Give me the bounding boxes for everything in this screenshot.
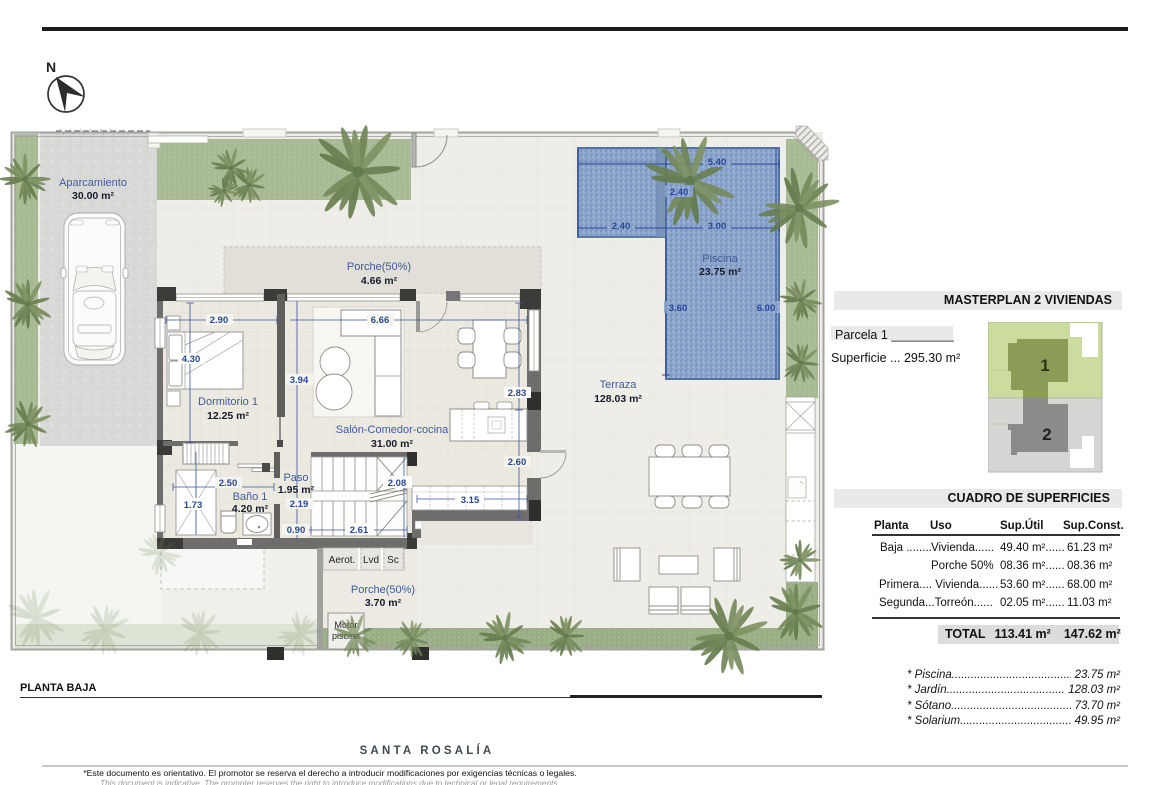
svg-text:Dormitorio 1: Dormitorio 1	[198, 396, 258, 408]
svg-text:1.73: 1.73	[184, 500, 203, 511]
svg-text:3.00: 3.00	[708, 221, 727, 232]
svg-text:Terraza: Terraza	[600, 379, 638, 391]
svg-text:Sc: Sc	[387, 555, 399, 566]
svg-text:2.60: 2.60	[508, 457, 527, 468]
svg-text:5.40: 5.40	[708, 157, 727, 168]
svg-text:2.40: 2.40	[612, 221, 631, 232]
svg-text:Aparcamiento: Aparcamiento	[59, 177, 127, 189]
svg-text:2.19: 2.19	[290, 499, 309, 510]
svg-text:2.50: 2.50	[219, 478, 238, 489]
svg-text:2.61: 2.61	[350, 525, 369, 536]
svg-text:2.90: 2.90	[210, 315, 229, 326]
svg-text:Baño 1: Baño 1	[233, 491, 268, 503]
svg-text:1: 1	[1040, 356, 1049, 375]
svg-text:3.60: 3.60	[669, 303, 688, 314]
svg-text:4.30: 4.30	[182, 354, 201, 365]
svg-text:Salón-Comedor-cocina: Salón-Comedor-cocina	[336, 424, 449, 436]
svg-text:2: 2	[1042, 425, 1051, 444]
svg-text:Lvd: Lvd	[363, 555, 379, 566]
svg-text:6.00: 6.00	[757, 303, 776, 314]
svg-text:Piscina: Piscina	[702, 253, 738, 265]
svg-text:0.90: 0.90	[287, 525, 306, 536]
svg-text:31.00 m²: 31.00 m²	[371, 438, 414, 450]
svg-text:2.08: 2.08	[388, 478, 407, 489]
svg-text:4.20 m²: 4.20 m²	[232, 503, 269, 515]
svg-text:2.83: 2.83	[508, 388, 527, 399]
svg-text:Porche(50%): Porche(50%)	[351, 584, 415, 596]
svg-text:128.03 m²: 128.03 m²	[594, 393, 642, 405]
svg-text:4.66 m²: 4.66 m²	[361, 275, 398, 287]
svg-text:Aerot.: Aerot.	[329, 555, 356, 566]
svg-text:3.15: 3.15	[461, 495, 480, 506]
svg-text:Paso: Paso	[283, 472, 308, 484]
svg-text:30.00 m²: 30.00 m²	[72, 190, 115, 202]
svg-text:23.75 m²: 23.75 m²	[699, 266, 742, 278]
svg-text:6.66: 6.66	[371, 315, 390, 326]
svg-text:1.95 m²: 1.95 m²	[278, 484, 315, 496]
svg-text:Porche(50%): Porche(50%)	[347, 261, 411, 273]
svg-text:2.40: 2.40	[670, 187, 689, 198]
svg-text:12.25 m²: 12.25 m²	[207, 410, 250, 422]
svg-text:N: N	[46, 59, 56, 75]
svg-text:3.94: 3.94	[290, 375, 309, 386]
svg-text:3.70 m²: 3.70 m²	[365, 597, 402, 609]
